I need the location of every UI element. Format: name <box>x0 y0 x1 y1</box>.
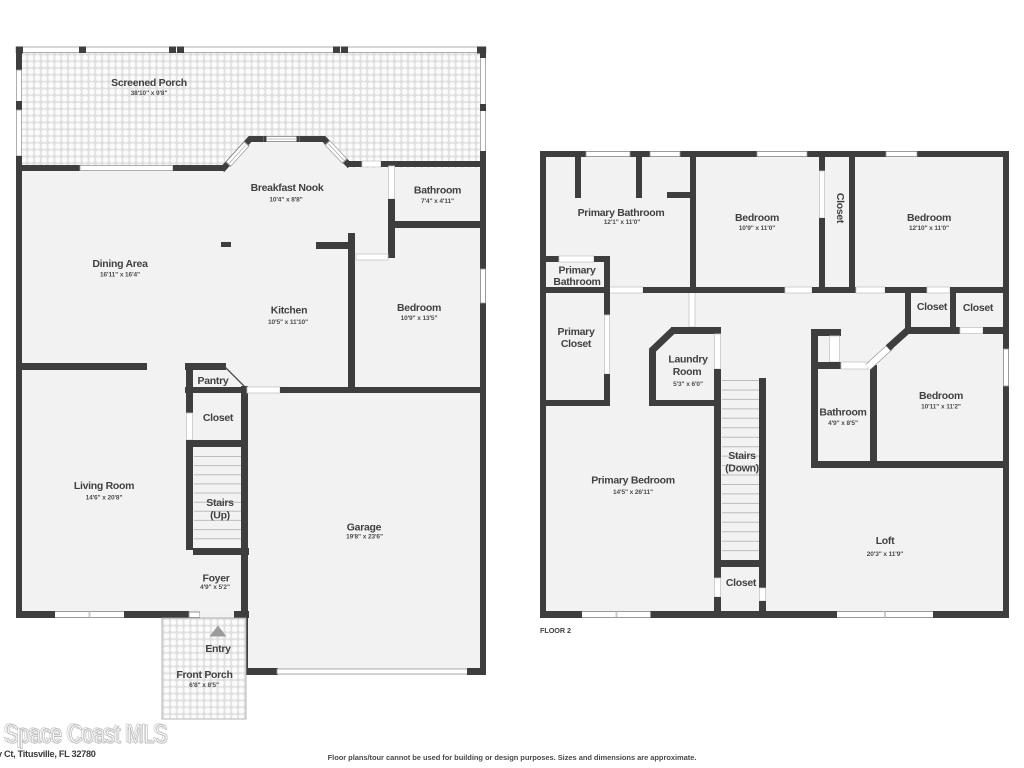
svg-text:10'5" x 11'10": 10'5" x 11'10" <box>268 319 308 326</box>
svg-text:Closet: Closet <box>561 338 592 350</box>
svg-text:Bathroom: Bathroom <box>414 185 461 197</box>
svg-text:Room: Room <box>673 366 702 378</box>
svg-text:Stairs: Stairs <box>728 450 756 462</box>
svg-text:FLOOR 2: FLOOR 2 <box>540 626 571 635</box>
svg-text:Bathroom: Bathroom <box>819 407 866 419</box>
svg-text:Closet: Closet <box>726 577 757 589</box>
svg-text:20'3" x 11'9": 20'3" x 11'9" <box>867 551 904 558</box>
svg-text:Bedroom: Bedroom <box>919 390 963 402</box>
svg-text:Living Room: Living Room <box>74 480 134 492</box>
svg-text:Bedroom: Bedroom <box>397 302 441 314</box>
svg-text:4'9" x 8'5": 4'9" x 8'5" <box>828 420 858 427</box>
svg-text:Bedroom: Bedroom <box>907 212 951 224</box>
svg-text:Closet: Closet <box>834 193 846 224</box>
svg-text:Closet: Closet <box>963 302 994 314</box>
svg-text:(Down): (Down) <box>725 463 759 475</box>
svg-text:Primary Bathroom: Primary Bathroom <box>578 207 665 219</box>
svg-text:16'11" x 16'4": 16'11" x 16'4" <box>100 272 140 279</box>
svg-text:Closet: Closet <box>917 301 948 313</box>
svg-text:5'3" x 6'0": 5'3" x 6'0" <box>673 381 703 388</box>
svg-text:38'10" x 9'8": 38'10" x 9'8" <box>131 90 168 97</box>
svg-text:Primary: Primary <box>557 326 594 338</box>
svg-text:Front Porch: Front Porch <box>176 669 232 681</box>
svg-text:Floor plans/tour cannot be use: Floor plans/tour cannot be used for buil… <box>328 753 697 762</box>
svg-text:7'4" x 4'11": 7'4" x 4'11" <box>421 198 454 205</box>
svg-text:10'11" x 11'2": 10'11" x 11'2" <box>921 404 961 411</box>
svg-text:Bedroom: Bedroom <box>735 212 779 224</box>
svg-text:e Space Coast MLS: e Space Coast MLS <box>0 719 168 748</box>
svg-text:Dining Area: Dining Area <box>92 258 148 270</box>
svg-text:4'9" x 5'2": 4'9" x 5'2" <box>200 584 230 591</box>
svg-text:Bathroom: Bathroom <box>553 276 600 288</box>
svg-text:Screened Porch: Screened Porch <box>111 77 187 89</box>
svg-text:Foyer: Foyer <box>202 573 229 585</box>
svg-text:12'1" x 11'0": 12'1" x 11'0" <box>604 219 641 226</box>
svg-text:Breakfast Nook: Breakfast Nook <box>251 182 324 194</box>
svg-text:Garage: Garage <box>347 522 382 534</box>
svg-text:Kitchen: Kitchen <box>271 305 307 317</box>
svg-text:14'5" x 26'11": 14'5" x 26'11" <box>613 489 653 496</box>
svg-text:(Up): (Up) <box>210 510 230 522</box>
svg-text:Stairs: Stairs <box>206 497 234 509</box>
svg-text:10'4" x 8'8": 10'4" x 8'8" <box>269 197 302 204</box>
svg-text:Primary Bedroom: Primary Bedroom <box>591 475 675 487</box>
svg-text:Primary: Primary <box>558 265 595 277</box>
svg-text:6'8" x 8'5": 6'8" x 8'5" <box>189 682 219 689</box>
svg-text:14'6" x 20'8": 14'6" x 20'8" <box>86 495 123 502</box>
svg-text:y Ct, Titusville, FL 32780: y Ct, Titusville, FL 32780 <box>0 749 96 759</box>
svg-text:10'9" x 11'0": 10'9" x 11'0" <box>739 225 776 232</box>
svg-text:Closet: Closet <box>203 412 234 424</box>
svg-text:Laundry: Laundry <box>668 354 708 366</box>
svg-text:Loft: Loft <box>876 535 895 547</box>
svg-text:Entry: Entry <box>205 643 231 655</box>
svg-text:12'10" x 11'0": 12'10" x 11'0" <box>909 225 949 232</box>
svg-text:10'9" x 13'5": 10'9" x 13'5" <box>401 315 438 322</box>
svg-text:19'8" x 23'6": 19'8" x 23'6" <box>346 534 383 541</box>
svg-text:Pantry: Pantry <box>198 375 229 387</box>
